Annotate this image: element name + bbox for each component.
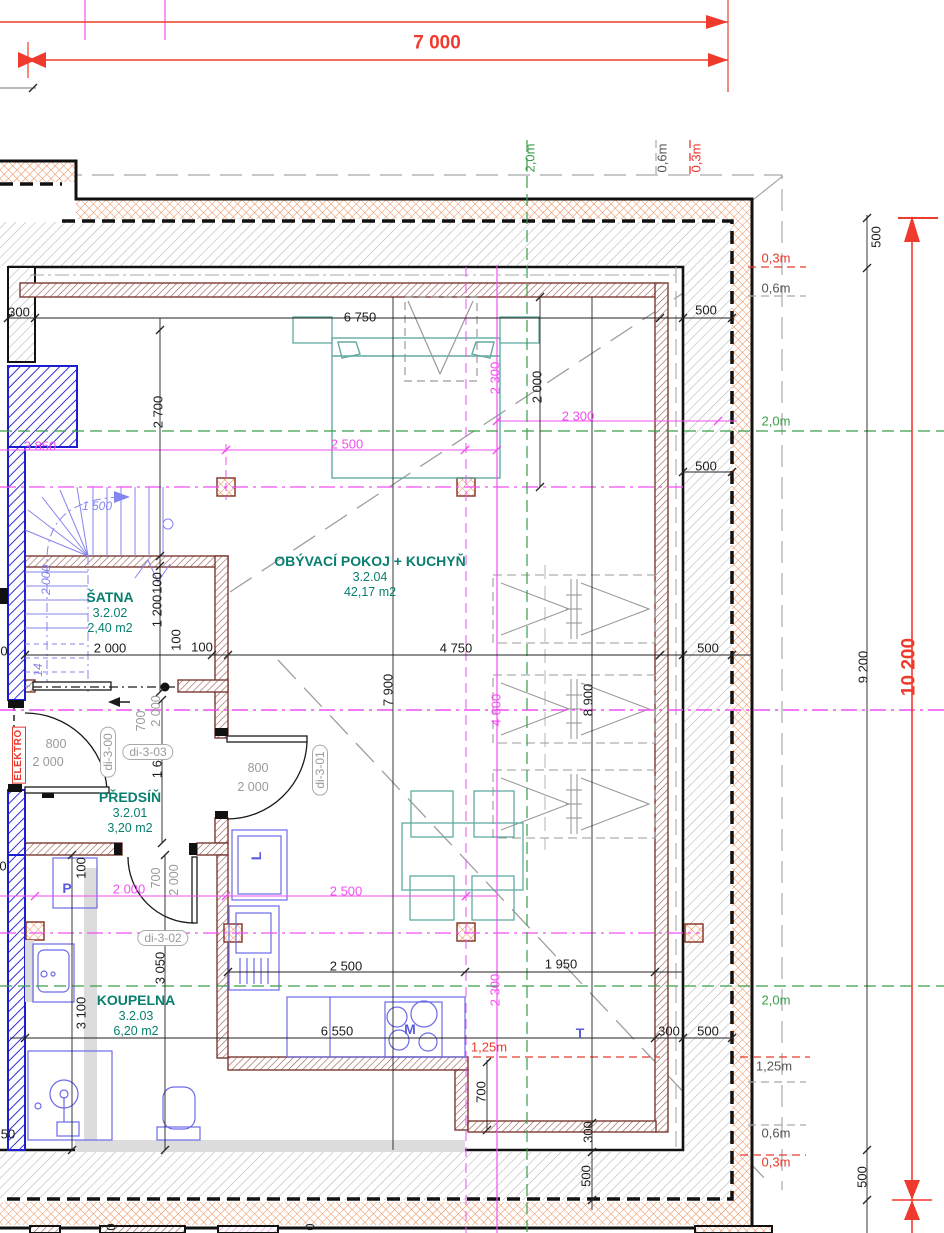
doors: [25, 682, 307, 923]
axis-lines: [0, 0, 944, 1233]
plan-geometry: [0, 0, 944, 1233]
cooktop: [385, 1001, 442, 1057]
floor-plan: 7 0005009 20010 2005002,0m0,6m0,3m0,3m0,…: [0, 0, 944, 1233]
pocket-door-di-3-03: [33, 682, 178, 692]
wardrobes-right: [493, 575, 655, 838]
fridge: [232, 830, 287, 900]
kitchen: [229, 830, 465, 1057]
stairs: [25, 487, 173, 692]
nightstands: [293, 317, 539, 343]
entry-arrow: [108, 697, 130, 707]
door-di-3-01: [227, 736, 307, 819]
floor-strip: [75, 1140, 465, 1152]
washbasin: [33, 944, 74, 1002]
dining-set: [402, 791, 523, 920]
door-di-3-00: [25, 713, 109, 793]
dishwasher: [229, 906, 279, 990]
door-di-3-02: [128, 857, 197, 923]
bed: [332, 338, 500, 478]
left-wall: [8, 366, 77, 1150]
bathroom: [25, 858, 465, 1152]
kitchen-counter: [287, 997, 465, 1057]
tiled-strip: [84, 868, 97, 1140]
shower: [28, 1051, 112, 1140]
red-dimensions: [0, 0, 938, 1233]
toilet: [157, 1087, 200, 1140]
